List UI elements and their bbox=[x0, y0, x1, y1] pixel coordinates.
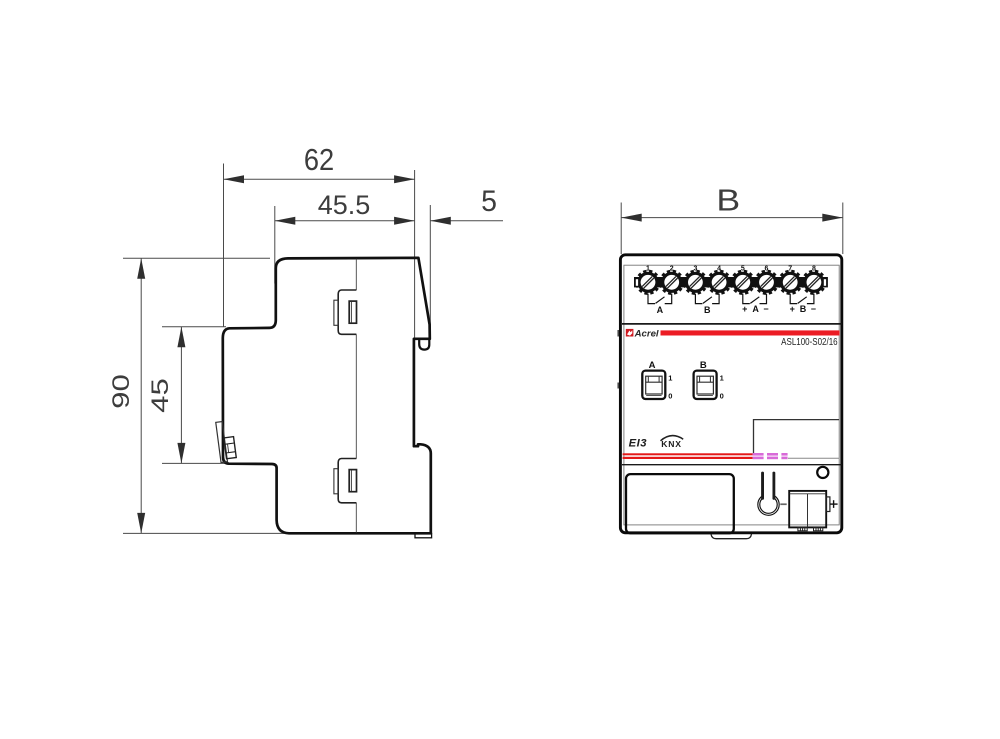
svg-text:−: − bbox=[763, 304, 768, 314]
svg-text:1: 1 bbox=[720, 374, 724, 383]
svg-text:3: 3 bbox=[693, 265, 697, 272]
svg-text:B: B bbox=[700, 360, 707, 371]
svg-text:Acrel: Acrel bbox=[634, 329, 659, 340]
svg-text:+: + bbox=[742, 304, 747, 314]
svg-text:5: 5 bbox=[481, 185, 497, 218]
svg-text:8: 8 bbox=[812, 265, 816, 272]
svg-text:6: 6 bbox=[765, 265, 769, 272]
svg-text:A: A bbox=[649, 360, 656, 371]
svg-text:45: 45 bbox=[146, 378, 173, 413]
svg-text:A: A bbox=[657, 305, 664, 315]
svg-text:4: 4 bbox=[717, 265, 721, 272]
svg-text:2: 2 bbox=[670, 265, 674, 272]
svg-text:1: 1 bbox=[668, 374, 672, 383]
svg-text:B: B bbox=[800, 304, 807, 314]
svg-text:1: 1 bbox=[646, 265, 650, 272]
svg-text:A: A bbox=[752, 304, 759, 314]
svg-text:+: + bbox=[790, 304, 795, 314]
svg-text:KNX: KNX bbox=[661, 439, 682, 449]
svg-text:62: 62 bbox=[304, 143, 334, 177]
svg-text:0: 0 bbox=[720, 391, 724, 400]
svg-text:45.5: 45.5 bbox=[318, 190, 371, 220]
svg-text:5: 5 bbox=[741, 265, 745, 272]
svg-text:7: 7 bbox=[788, 265, 792, 272]
svg-text:0: 0 bbox=[668, 391, 672, 400]
svg-text:−: − bbox=[811, 304, 816, 314]
svg-text:90: 90 bbox=[107, 374, 134, 409]
svg-text:ASL100-S02/16: ASL100-S02/16 bbox=[781, 336, 837, 347]
svg-text:B: B bbox=[704, 305, 711, 315]
svg-text:B: B bbox=[716, 184, 740, 218]
svg-text:EI3: EI3 bbox=[629, 438, 648, 450]
